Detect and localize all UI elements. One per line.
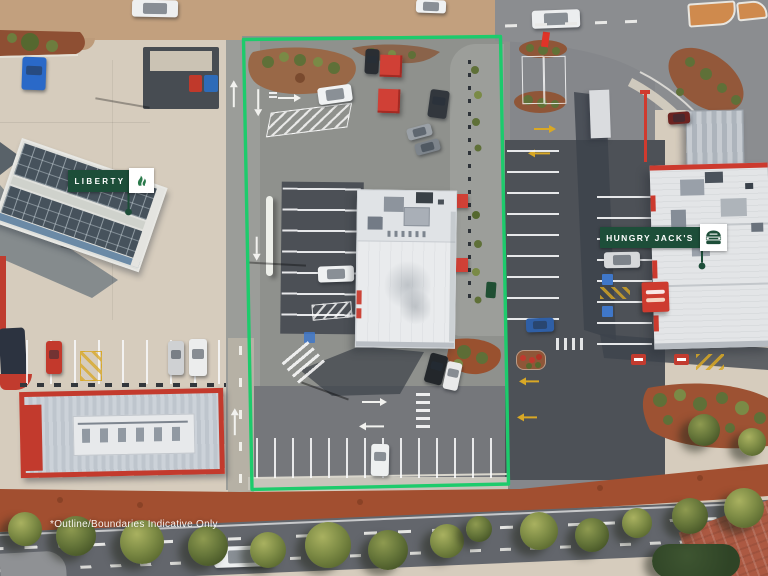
hungry-jacks-burger-icon — [703, 227, 724, 248]
hungry-jacks-logo-box — [700, 224, 727, 251]
aerial-photo: LIBERTY HUNGRY JACK'S *Outline/Boundarie… — [0, 0, 768, 576]
liberty-label-text: LIBERTY — [74, 177, 125, 186]
hungry-jacks-label: HUNGRY JACK'S — [600, 227, 700, 248]
overlay-layer — [0, 0, 768, 576]
hungry-jacks-label-leader — [699, 250, 706, 269]
hungry-jacks-label-text: HUNGRY JACK'S — [606, 233, 694, 243]
liberty-logo-box — [129, 168, 154, 193]
disclaimer-text: *Outline/Boundaries Indicative Only — [50, 519, 218, 530]
property-boundary-outline — [244, 37, 509, 490]
liberty-label: LIBERTY — [68, 170, 130, 192]
liberty-flame-icon — [133, 172, 150, 189]
liberty-label-leader — [125, 192, 132, 215]
